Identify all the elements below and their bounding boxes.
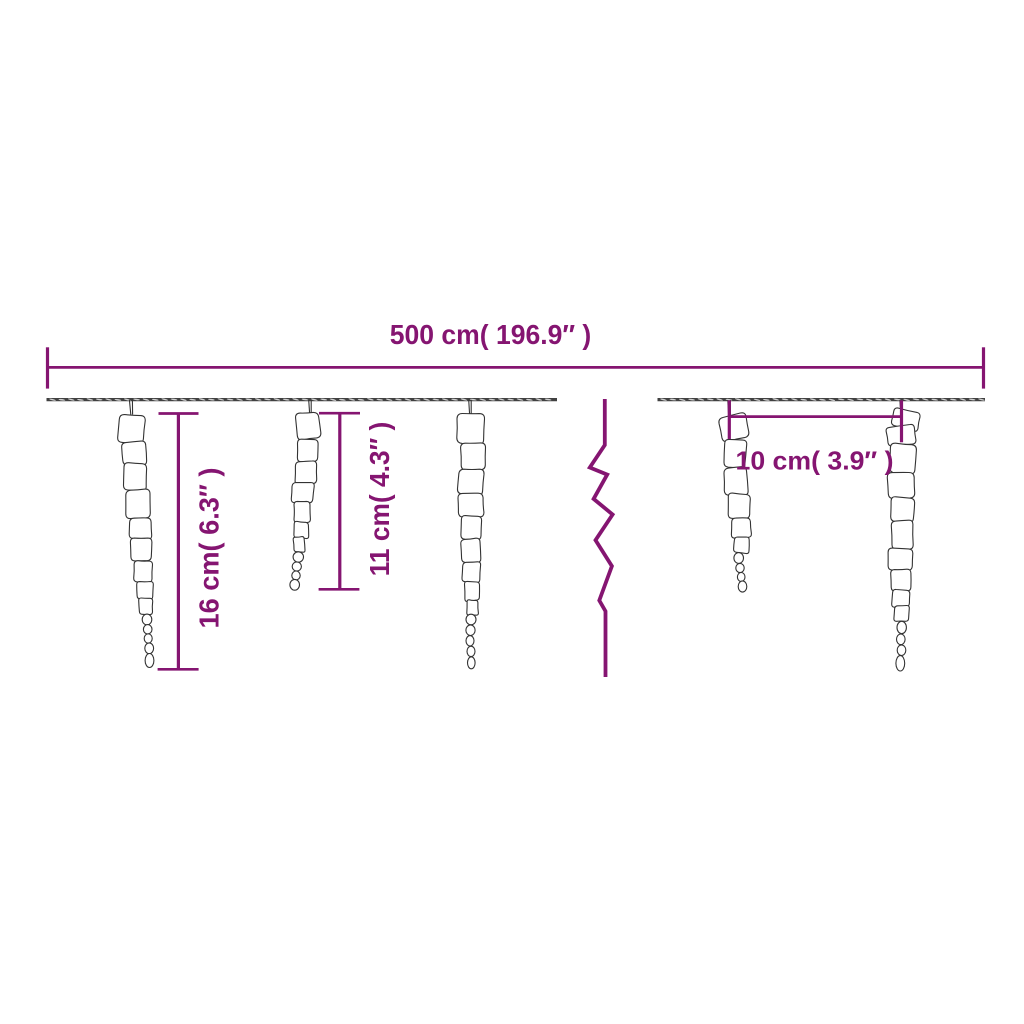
svg-text:16 cm( 6.3″ ): 16 cm( 6.3″ ) bbox=[194, 468, 225, 629]
svg-text:10 cm( 3.9″ ): 10 cm( 3.9″ ) bbox=[736, 447, 894, 475]
svg-text:500 cm( 196.9″ ): 500 cm( 196.9″ ) bbox=[390, 319, 592, 350]
svg-text:11 cm( 4.3″ ): 11 cm( 4.3″ ) bbox=[364, 422, 395, 577]
